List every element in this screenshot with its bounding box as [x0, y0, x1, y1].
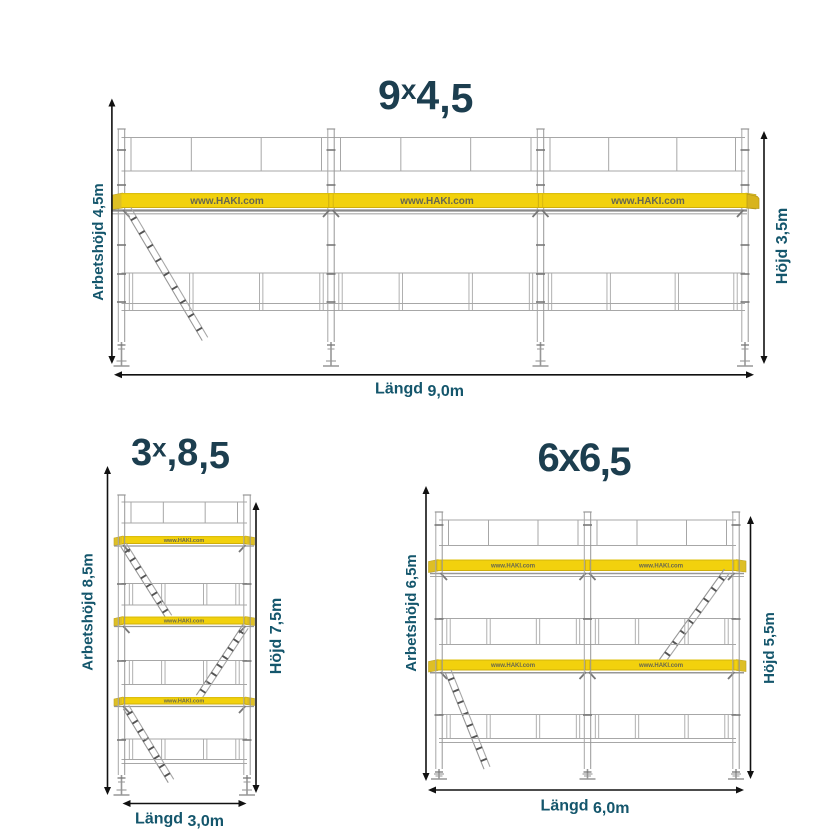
svg-text:Höjd 7,5m: Höjd 7,5m	[268, 598, 285, 674]
svg-text:Arbetshöjd 8,5m: Arbetshöjd 8,5m	[80, 553, 97, 671]
svg-text:www.HAKI.com: www.HAKI.com	[638, 663, 683, 669]
svg-text:Längd 6,0m: Längd 6,0m	[541, 798, 630, 818]
svg-text:Höjd 3,5m: Höjd 3,5m	[774, 208, 791, 284]
svg-text:6x6,5: 6x6,5	[538, 436, 632, 484]
svg-text:www.HAKI.com: www.HAKI.com	[163, 699, 205, 705]
svg-text:www.HAKI.com: www.HAKI.com	[189, 196, 264, 207]
svg-text:www.HAKI.com: www.HAKI.com	[490, 563, 535, 569]
svg-text:Längd 9,0m: Längd 9,0m	[375, 381, 464, 401]
svg-text:www.HAKI.com: www.HAKI.com	[163, 618, 205, 624]
svg-text:3x,8,5: 3x,8,5	[131, 432, 230, 477]
svg-text:www.HAKI.com: www.HAKI.com	[399, 196, 474, 207]
svg-text:Arbetshöjd 4,5m: Arbetshöjd 4,5m	[90, 183, 107, 301]
svg-text:www.HAKI.com: www.HAKI.com	[638, 563, 683, 569]
svg-text:www.HAKI.com: www.HAKI.com	[490, 663, 535, 669]
svg-text:Höjd 5,5m: Höjd 5,5m	[761, 612, 778, 684]
svg-text:Arbetshöjd 6,5m: Arbetshöjd 6,5m	[403, 554, 420, 672]
svg-text:Längd 3,0m: Längd 3,0m	[135, 811, 224, 831]
svg-text:9x4,5: 9x4,5	[378, 72, 473, 121]
svg-text:www.HAKI.com: www.HAKI.com	[610, 196, 685, 207]
svg-text:www.HAKI.com: www.HAKI.com	[163, 538, 205, 544]
